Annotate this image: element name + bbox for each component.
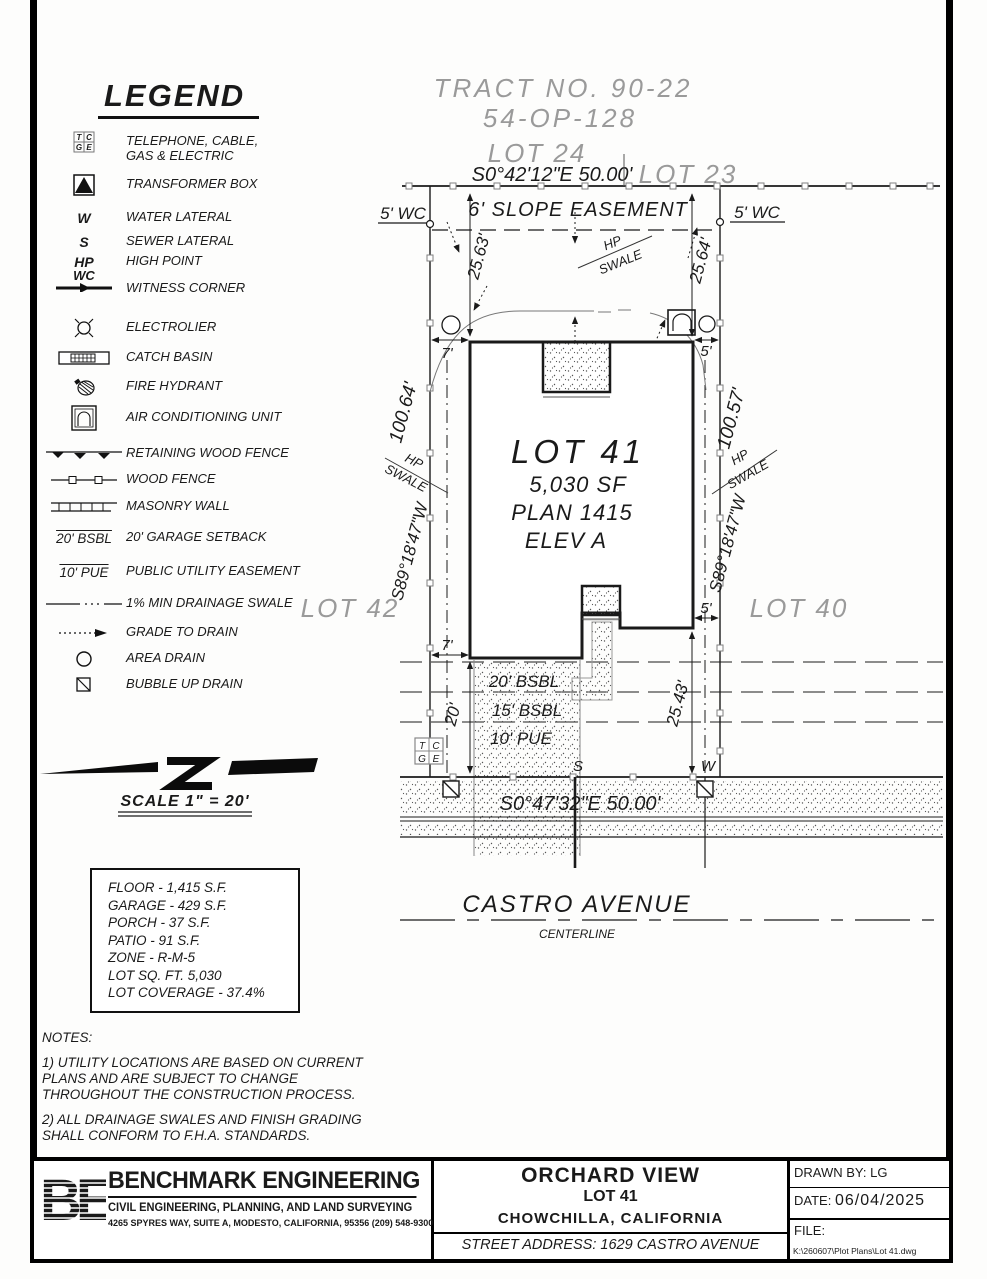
date-label: DATE:	[794, 1193, 831, 1208]
stat-patio: PATIO - 91 S.F.	[108, 932, 298, 950]
fire-hydrant-icon	[42, 375, 126, 399]
legend-item-catch-basin: CATCH BASIN	[40, 346, 350, 372]
stat-porch: PORCH - 37 S.F.	[108, 914, 298, 932]
svg-text:G: G	[418, 754, 426, 765]
file-row: FILE: K:\260607\Plot Plans\Lot 41.dwg	[790, 1220, 949, 1259]
tcge-utility-box: T C G E	[415, 738, 443, 765]
dim-25-43: 25.43'	[662, 678, 693, 729]
legend-title: LEGEND	[98, 78, 259, 119]
legend-item-fire-hydrant: FIRE HYDRANT	[40, 375, 350, 401]
file-path: K:\260607\Plot Plans\Lot 41.dwg	[793, 1246, 916, 1256]
date-row: DATE: 06/04/2025	[790, 1188, 949, 1220]
note-2: 2) ALL DRAINAGE SWALES AND FINISH GRADIN…	[42, 1112, 387, 1144]
south-bearing-label: S0°47'32"E 50.00'	[500, 793, 662, 815]
lot-40-label: LOT 40	[750, 593, 849, 623]
benchmark-logo: BE	[42, 1170, 106, 1233]
catch-basin-icon	[42, 346, 126, 370]
lot-23-label: LOT 23	[639, 159, 738, 189]
company-tagline: CIVIL ENGINEERING, PLANNING, AND LAND SU…	[108, 1200, 396, 1214]
legend-item-grade-to-drain: GRADE TO DRAIN	[40, 621, 350, 647]
svg-text:C: C	[432, 741, 440, 752]
svg-text:G: G	[76, 143, 82, 152]
centerline-label: CENTERLINE	[539, 927, 616, 941]
patio	[582, 586, 620, 615]
ac-unit-icon	[42, 406, 126, 430]
stat-lot-sqft: LOT SQ. FT. 5,030	[108, 967, 298, 985]
dim-5-top: 5'	[700, 343, 712, 360]
title-block-meta-cell: DRAWN BY: LG DATE: 06/04/2025 FILE: K:\2…	[790, 1161, 949, 1259]
lot-41-plan: PLAN 1415	[511, 500, 633, 525]
grade-to-drain-icon	[42, 621, 126, 645]
dim-5-bottom: 5'	[700, 600, 712, 617]
lot-41-elev: ELEV A	[525, 528, 607, 553]
company-name: BENCHMARK ENGINEERING	[108, 1167, 416, 1198]
svg-text:C: C	[86, 133, 92, 142]
stat-coverage: LOT COVERAGE - 37.4%	[108, 984, 298, 1002]
legend-item-masonry-wall: MASONRY WALL	[40, 495, 350, 521]
legend-item-ac-unit: AIR CONDITIONING UNIT	[40, 406, 350, 432]
legend-item-garage-setback: 20' BSBL 20' GARAGE SETBACK	[40, 526, 350, 552]
stat-garage: GARAGE - 429 S.F.	[108, 897, 298, 915]
tcge-icon: T C G E	[42, 130, 126, 154]
stat-floor: FLOOR - 1,415 S.F.	[108, 879, 298, 897]
ac-unit-symbol	[668, 310, 695, 335]
sewer-lateral-label: S	[573, 758, 583, 775]
dim-7-bottom: 7'	[441, 637, 453, 654]
area-drain-right	[699, 316, 715, 332]
dim-7-top: 7'	[441, 345, 453, 362]
witness-corner-right: 5' WC	[717, 203, 786, 226]
masonry-wall-icon	[42, 495, 126, 519]
drainage-swale-icon	[42, 592, 126, 616]
legend-item-swale: 1% MIN DRAINAGE SWALE	[40, 592, 350, 618]
lot-41-title: LOT 41	[511, 433, 645, 470]
bubble-up-drain-icon	[42, 673, 126, 697]
legend-item-transformer: TRANSFORMER BOX	[40, 173, 350, 199]
legend-item-area-drain: AREA DRAIN	[40, 647, 350, 673]
area-drain-left	[442, 316, 460, 334]
sidewalk	[400, 781, 943, 815]
notes-section: NOTES: 1) UTILITY LOCATIONS ARE BASED ON…	[42, 1030, 387, 1153]
svg-text:SWALE: SWALE	[382, 461, 429, 495]
title-block-company-cell: BE BENCHMARK ENGINEERING CIVIL ENGINEERI…	[34, 1161, 434, 1259]
svg-text:T: T	[77, 133, 83, 142]
transformer-box-icon	[42, 173, 126, 197]
dim-100-57: 100.57'	[714, 385, 751, 451]
note-1: 1) UTILITY LOCATIONS ARE BASED ON CURREN…	[42, 1055, 387, 1103]
drawn-by: DRAWN BY: LG	[790, 1161, 949, 1188]
lot-statistics-box: FLOOR - 1,415 S.F. GARAGE - 429 S.F. POR…	[90, 868, 300, 1013]
scale-bar: SCALE 1" = 20'	[40, 758, 318, 816]
svg-text:5' WC: 5' WC	[380, 204, 426, 223]
gutter	[400, 823, 943, 835]
stat-zone: ZONE - R-M-5	[108, 949, 298, 967]
witness-corner-icon: WC	[42, 268, 126, 292]
project-name: ORCHARD VIEW	[434, 1164, 787, 1188]
porch	[543, 342, 610, 392]
title-block: BE BENCHMARK ENGINEERING CIVIL ENGINEERI…	[30, 1157, 953, 1263]
svg-text:E: E	[433, 754, 440, 765]
pue-10-label: 10' PUE	[490, 729, 552, 748]
company-address: 4265 SPYRES WAY, SUITE A, MODESTO, CALIF…	[108, 1218, 428, 1228]
hp-swale-top: HP SWALE	[578, 232, 652, 277]
area-drain-icon	[42, 647, 126, 671]
bsbl-symbol: 20' BSBL	[42, 526, 126, 550]
water-lateral-label: W	[701, 758, 717, 775]
legend-item-pue: 10' PUE PUBLIC UTILITY EASEMENT	[40, 560, 350, 586]
project-lot: LOT 41	[434, 1188, 787, 1206]
legend-item-bubble-up-drain: BUBBLE UP DRAIN	[40, 673, 350, 699]
electrolier-icon	[42, 316, 126, 340]
plot-plan-sheet: TRACT NO. 90-22 54-OP-128 LOT 24 LOT 23 …	[0, 0, 987, 1279]
tract-map-ref: 54-OP-128	[483, 103, 637, 133]
grade-to-drain-arrows	[447, 212, 697, 352]
svg-text:SWALE: SWALE	[597, 246, 645, 277]
svg-text:5' WC: 5' WC	[734, 203, 780, 222]
street-address: STREET ADDRESS: 1629 CASTRO AVENUE	[434, 1232, 787, 1259]
legend-item-retaining-fence: RETAINING WOOD FENCE	[40, 442, 350, 468]
street-name: CASTRO AVENUE	[462, 891, 691, 918]
legend: LEGEND T C G E TELEPHONE, CABLE, GAS & E…	[40, 78, 350, 708]
bearing-west-right: S89°18'47"W	[706, 491, 751, 595]
bsbl-20-label: 20' BSBL	[488, 672, 559, 691]
retaining-wood-fence-icon	[42, 442, 126, 466]
date-value: 06/04/2025	[835, 1192, 925, 1209]
dim-100-64: 100.64'	[386, 379, 423, 445]
dim-20: 20'	[440, 701, 465, 729]
legend-item-water: W WATER LATERAL	[40, 206, 350, 232]
bsbl-15-label: 15' BSBL	[492, 701, 562, 720]
tract-number: TRACT NO. 90-22	[434, 73, 693, 103]
water-lateral-symbol: W	[42, 206, 126, 230]
pue-symbol: 10' PUE	[42, 560, 126, 584]
legend-item-electrolier: ELECTROLIER	[40, 316, 350, 342]
hp-swale-left: HP SWALE	[382, 450, 448, 495]
legend-item-witness-corner: WC WITNESS CORNER	[40, 268, 350, 302]
slope-easement-label: 6' SLOPE EASEMENT	[468, 199, 689, 221]
svg-text:E: E	[86, 143, 92, 152]
title-block-project-cell: ORCHARD VIEW LOT 41 CHOWCHILLA, CALIFORN…	[434, 1161, 790, 1259]
notes-title: NOTES:	[42, 1030, 387, 1046]
legend-item-tcge: T C G E TELEPHONE, CABLE, GAS & ELECTRIC	[40, 130, 350, 156]
bearing-west-left: S89°18'47"W	[388, 499, 433, 603]
wood-fence-icon	[42, 468, 126, 492]
svg-text:T: T	[419, 741, 426, 752]
file-label: FILE:	[794, 1223, 825, 1238]
lot-41-sf: 5,030 SF	[529, 472, 627, 497]
project-city: CHOWCHILLA, CALIFORNIA	[434, 1210, 787, 1227]
dim-25-64: 25.64'	[685, 235, 716, 286]
scale-label: SCALE 1" = 20'	[121, 793, 250, 810]
dim-25-63: 25.63'	[463, 231, 494, 282]
legend-item-wood-fence: WOOD FENCE	[40, 468, 350, 494]
witness-corner-left: 5' WC	[378, 204, 434, 228]
